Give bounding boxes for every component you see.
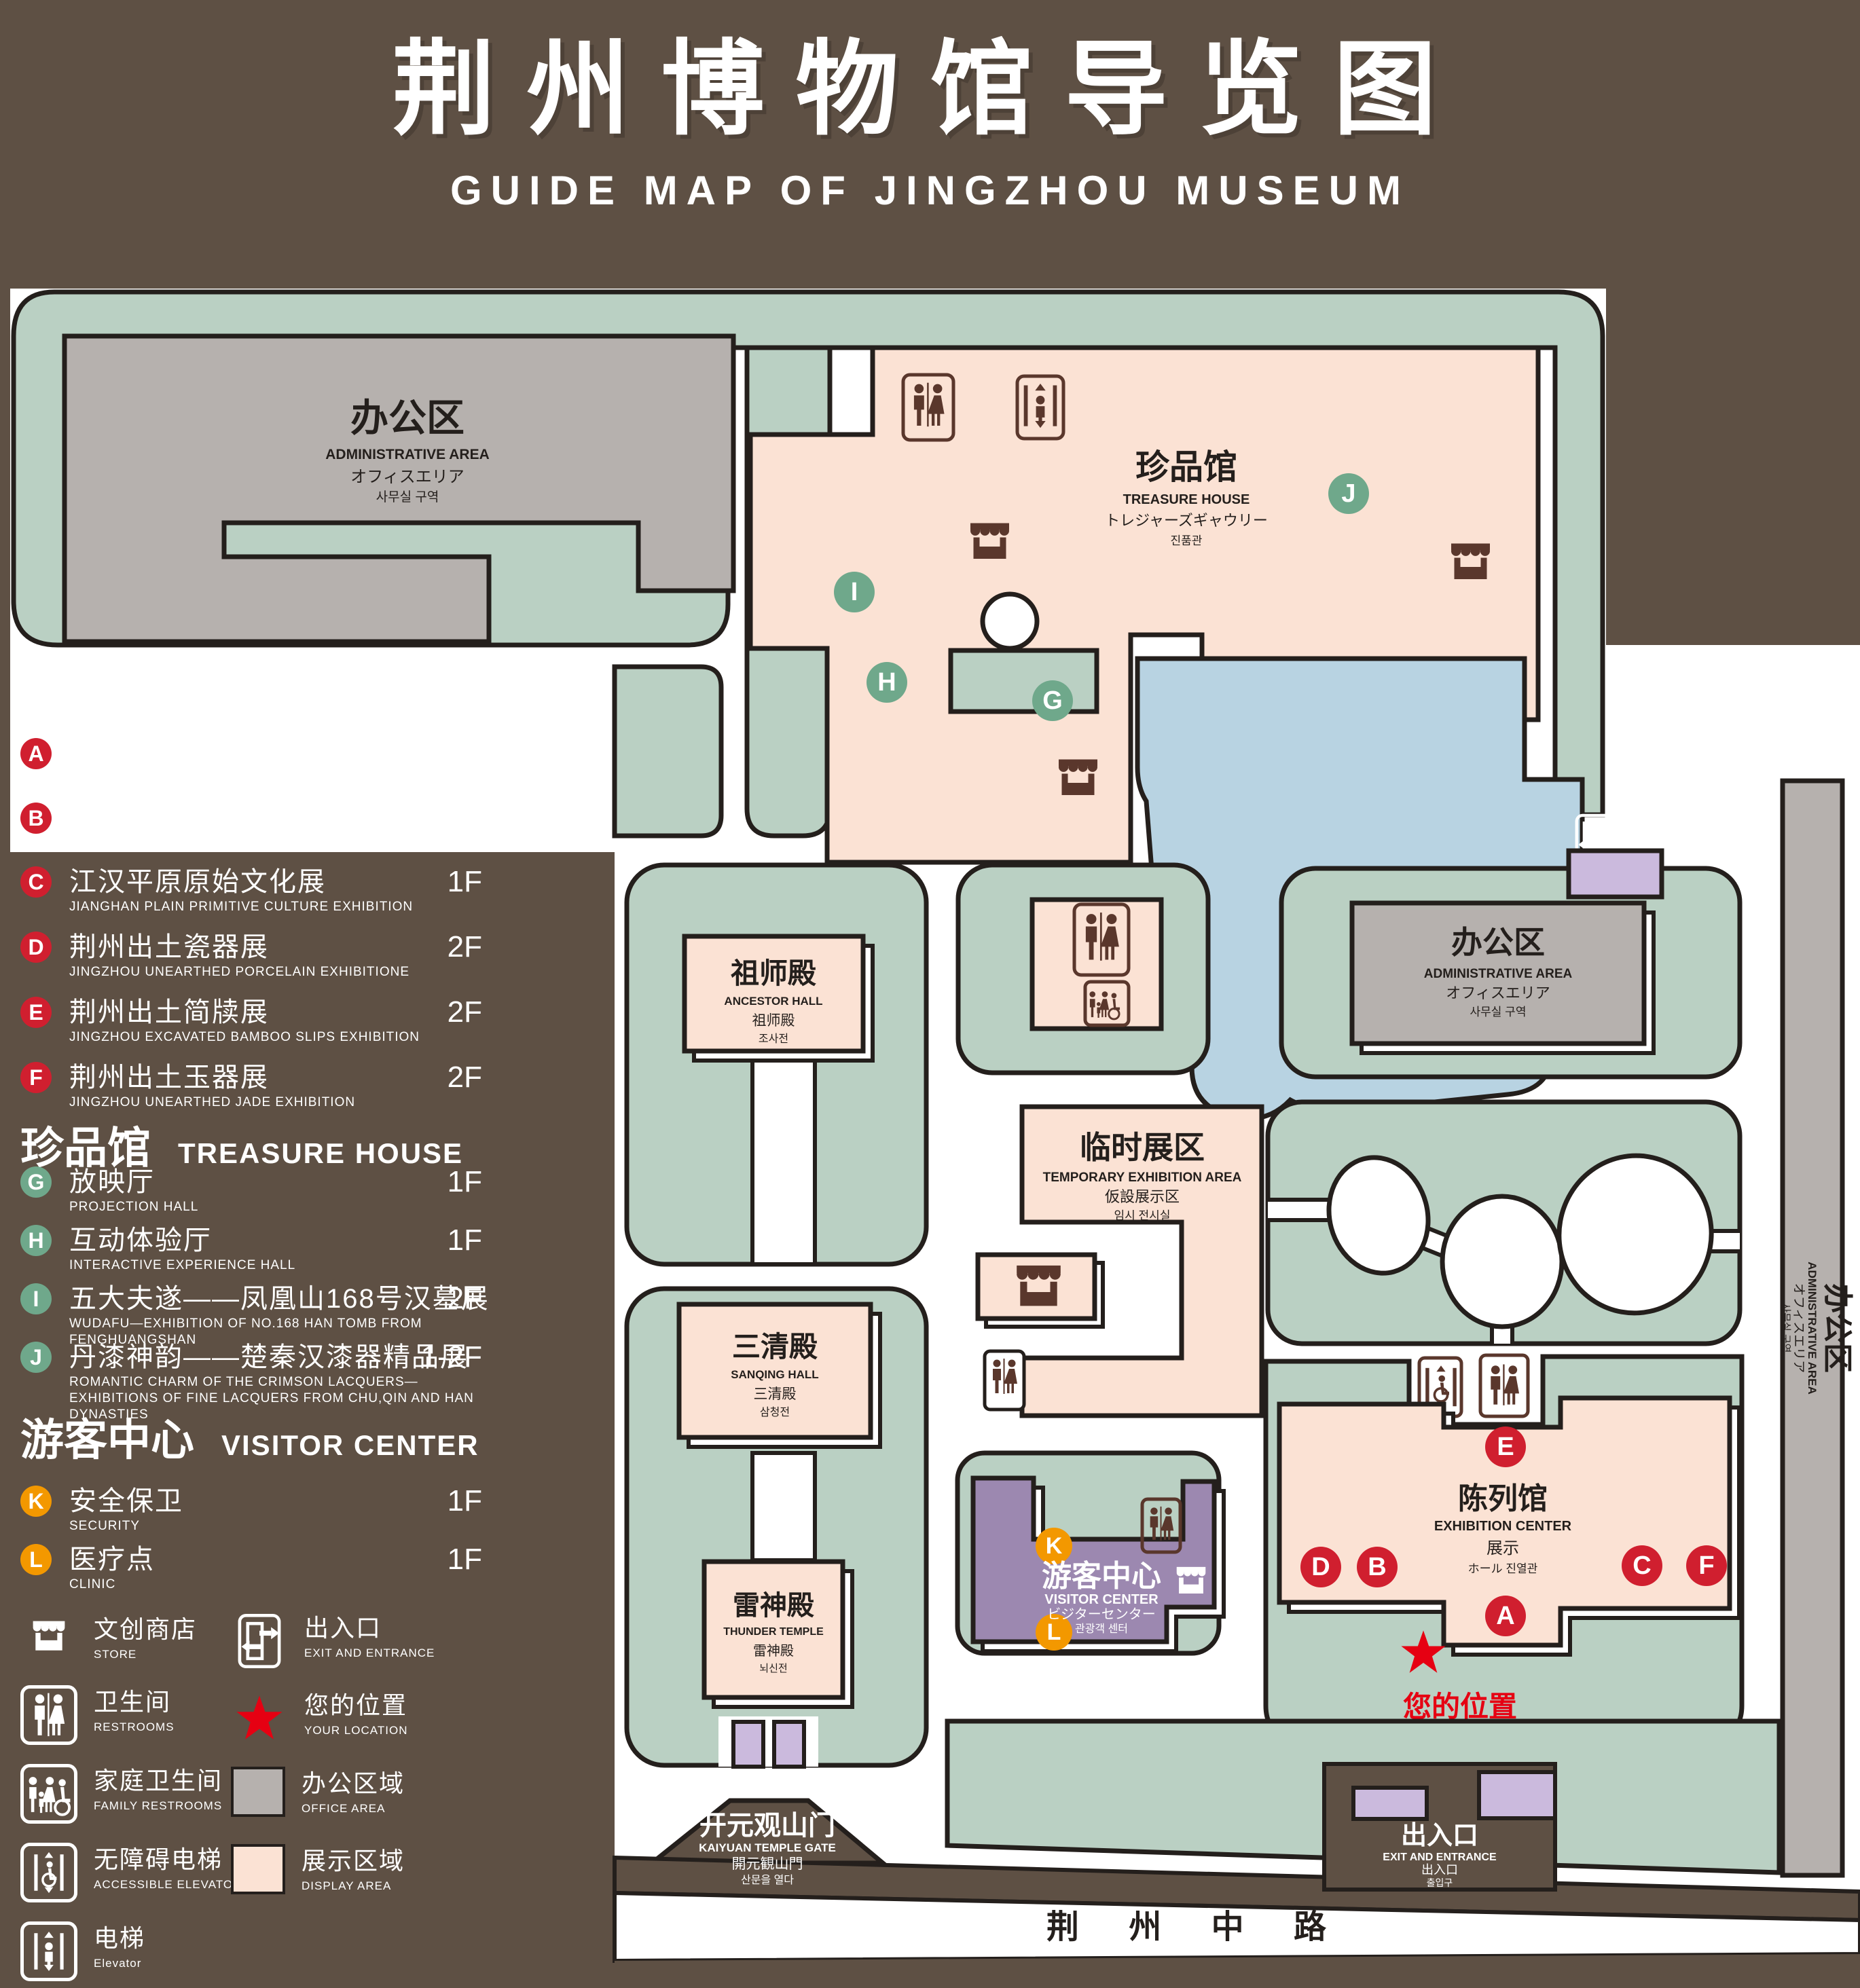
item-zh: 《火中的凤凰》壁画 bbox=[69, 737, 598, 771]
key-en: OFFICE AREA bbox=[302, 1801, 526, 1817]
family-restroom-icon bbox=[20, 1764, 77, 1824]
item-zh: 荆州出土简牍展 bbox=[69, 995, 598, 1029]
restroom-building bbox=[1032, 900, 1161, 1029]
ancestor-label-ko: 조사전 bbox=[759, 1033, 788, 1045]
admin-nw-label-ja: オフィスエリア bbox=[350, 468, 464, 486]
item-en: JINGZHOU EXCAVATED BAMBOO SLIPS EXHIBITI… bbox=[69, 1029, 477, 1046]
admin-nw-label-zh: 办公区 bbox=[350, 397, 464, 439]
svg-text:ADMINISTRATIVE AREA: ADMINISTRATIVE AREA bbox=[1806, 1262, 1819, 1395]
exit-south-label-ko: 출입구 bbox=[1427, 1877, 1453, 1888]
gate-label-zh: 开元观山门 bbox=[699, 1811, 835, 1841]
admin-mid-label-zh: 办公区 bbox=[1451, 925, 1545, 960]
badge-B: B bbox=[20, 803, 52, 834]
admin-nw-label-en: ADMINISTRATIVE AREA bbox=[325, 447, 490, 462]
marker-F-letter: F bbox=[1698, 1551, 1714, 1580]
thunder-label-ko: 뇌신전 bbox=[759, 1663, 787, 1674]
exit-south-label-en: EXIT AND ENTRANCE bbox=[1383, 1852, 1497, 1863]
exhibition-label-line4: ホール 진열관 bbox=[1468, 1562, 1538, 1575]
item-en: PROJECTION HALL bbox=[69, 1199, 477, 1215]
item-zh: 丹漆神韵——楚秦汉漆器精品展 bbox=[69, 1340, 598, 1374]
item-en: JINGZHOU UNEARTHED JADE EXHIBITION bbox=[69, 1094, 477, 1111]
elevator-icon bbox=[20, 1921, 77, 1981]
svg-text:사무실 구역: 사무실 구역 bbox=[1780, 1303, 1791, 1352]
exit-top-label-ja: 出入口 bbox=[1652, 830, 1692, 845]
exit-top-label-en: EXIT AND ENTRANCE bbox=[1611, 815, 1732, 828]
item-zh: 荆州出土玉器展 bbox=[69, 1061, 598, 1094]
item-floor: 2F bbox=[448, 995, 482, 1029]
item-en: INTERACTIVE EXPERIENCE HALL bbox=[69, 1257, 477, 1274]
exit-top-label-zh: 出入口 bbox=[1629, 782, 1715, 814]
treasure-label-zh: 珍品馆 bbox=[1135, 448, 1237, 486]
your-location-label: 您的位置 bbox=[1403, 1691, 1517, 1723]
legend-item-E: E 荆州出土简牍展 JINGZHOU EXCAVATED BAMBOO SLIP… bbox=[20, 995, 598, 1046]
marker-H-letter: H bbox=[877, 668, 896, 697]
green-block-west bbox=[615, 667, 721, 836]
visitor-label-en: VISITOR CENTER bbox=[1044, 1592, 1159, 1607]
accessible-elevator-icon bbox=[20, 1843, 77, 1902]
item-zh: 荆州出土瓷器展 bbox=[69, 930, 598, 964]
marker-I-letter: I bbox=[851, 578, 858, 606]
exit-south-label-zh: 出入口 bbox=[1401, 1822, 1478, 1850]
visitor-label-zh: 游客中心 bbox=[1042, 1560, 1161, 1593]
legend-item-I: I 五大夫遂——凤凰山168号汉墓展 WUDAFU—EXHIBITION OF … bbox=[20, 1282, 598, 1348]
item-floor: 1F bbox=[448, 1165, 482, 1199]
legend-item-D: D 荆州出土瓷器展 JINGZHOU UNEARTHED PORCELAIN E… bbox=[20, 930, 598, 980]
marker-K-letter: K bbox=[1046, 1533, 1063, 1559]
item-floor: 2F bbox=[448, 930, 482, 964]
gate-pillar bbox=[733, 1722, 763, 1767]
admin-mid-label-ja: オフィスエリア bbox=[1446, 984, 1550, 1001]
item-en: SECURITY bbox=[69, 1518, 477, 1534]
store-icon bbox=[20, 1613, 77, 1672]
sanqing-label-ko: 삼청전 bbox=[760, 1406, 790, 1418]
item-floor: 1F bbox=[448, 737, 482, 771]
key-exit: 出入口 EXIT AND ENTRANCE bbox=[231, 1611, 528, 1671]
treasure-label-ja: トレジャーズギャウリー bbox=[1105, 512, 1268, 529]
badge-J: J bbox=[20, 1342, 52, 1373]
legend-item-C: C 江汉平原原始文化展 JIANGHAN PLAIN PRIMITIVE CUL… bbox=[20, 865, 598, 915]
marker-B-letter: B bbox=[1368, 1553, 1386, 1581]
section-title-zh: 陈列馆 bbox=[20, 672, 151, 735]
marker-L-letter: L bbox=[1047, 1619, 1061, 1645]
thunder-label-ja: 雷神殿 bbox=[753, 1643, 794, 1659]
thunder-label-zh: 雷神殿 bbox=[733, 1591, 814, 1621]
gate-label-ko: 산문을 열다 bbox=[741, 1874, 794, 1886]
admin-nw-label-ko: 사무실 구역 bbox=[376, 490, 439, 504]
legend-item-B: B 荆州出土铜器展 JINGZHOU UNEARTHED BRONZE WARE… bbox=[20, 801, 598, 851]
key-office-area: 办公区域 OFFICE AREA bbox=[231, 1767, 526, 1817]
marker-G-letter: G bbox=[1042, 686, 1063, 715]
badge-G: G bbox=[20, 1166, 52, 1198]
section-title-en: VISITOR CENTER bbox=[221, 1429, 479, 1462]
key-zh: 展示区域 bbox=[302, 1844, 526, 1878]
gate-label-ja: 開元観山門 bbox=[732, 1856, 803, 1872]
store-block bbox=[978, 1255, 1095, 1319]
exhibition-label-en: EXHIBITION CENTER bbox=[1434, 1519, 1572, 1534]
section-title-en: EXHIBITION CENTER bbox=[178, 696, 490, 729]
legend-item-L: L 医疗点 CLINIC 1F bbox=[20, 1543, 598, 1593]
visitor-label-ja: ビジターセンター bbox=[1047, 1606, 1156, 1622]
legend-item-K: K 安全保卫 SECURITY 1F bbox=[20, 1484, 598, 1534]
svg-text:オフィスエリア: オフィスエリア bbox=[1791, 1283, 1806, 1374]
thunder-label-en: THUNDER TEMPLE bbox=[723, 1626, 824, 1638]
key-zh: 出入口 bbox=[304, 1611, 528, 1645]
badge-D: D bbox=[20, 932, 52, 963]
item-zh: 医疗点 bbox=[69, 1543, 598, 1577]
ancestor-label-en: ANCESTOR HALL bbox=[724, 995, 822, 1008]
map-legend: 陈列馆 EXHIBITION CENTER A 《火中的凤凰》壁画 THE PH… bbox=[20, 672, 618, 1983]
badge-I: I bbox=[20, 1283, 52, 1314]
gate-label-en: KAIYUAN TEMPLE GATE bbox=[699, 1841, 836, 1854]
item-zh: 五大夫遂——凤凰山168号汉墓展 bbox=[69, 1282, 598, 1316]
item-en: JINGZHOU UNEARTHED PORCELAIN EXHIBITIONE bbox=[69, 964, 477, 980]
marker-C-letter: C bbox=[1633, 1551, 1651, 1580]
item-floor: 1F bbox=[448, 865, 482, 899]
badge-F: F bbox=[20, 1062, 52, 1093]
exhibition-label-line3: 展示 bbox=[1487, 1539, 1519, 1558]
item-zh: 安全保卫 bbox=[69, 1484, 598, 1518]
legend-item-G: G 放映厅 PROJECTION HALL 1F bbox=[20, 1165, 598, 1215]
item-en: THE PHOENIX IN FIRE "MURAL PAINTING bbox=[69, 771, 477, 787]
treasure-green-terrace bbox=[951, 650, 1097, 712]
legend-section-exhibition: 陈列馆 EXHIBITION CENTER bbox=[20, 672, 490, 735]
sanqing-label-ja: 三清殿 bbox=[754, 1386, 797, 1402]
sanqing-label-zh: 三清殿 bbox=[732, 1331, 818, 1363]
legend-item-F: F 荆州出土玉器展 JINGZHOU UNEARTHED JADE EXHIBI… bbox=[20, 1061, 598, 1111]
item-floor: 2F bbox=[448, 1061, 482, 1094]
item-en: JIANGHAN PLAIN PRIMITIVE CULTURE EXHIBIT… bbox=[69, 899, 477, 915]
key-zh: 办公区域 bbox=[302, 1767, 526, 1801]
marker-E-letter: E bbox=[1497, 1433, 1514, 1461]
item-floor: 2F bbox=[448, 1282, 482, 1316]
item-zh: 荆州出土铜器展 bbox=[69, 801, 598, 835]
item-floor: 1F bbox=[448, 1223, 482, 1257]
section-title-zh: 游客中心 bbox=[20, 1405, 194, 1468]
key-en: EXIT AND ENTRANCE bbox=[304, 1645, 528, 1661]
key-zh: 电梯 bbox=[94, 1921, 318, 1955]
badge-L: L bbox=[20, 1544, 52, 1575]
svg-text:办公区: 办公区 bbox=[1821, 1283, 1854, 1373]
road-label: 荆 州 中 路 bbox=[1046, 1909, 1347, 1945]
ancestor-label-ja: 祖师殿 bbox=[752, 1013, 795, 1029]
display-area-swatch bbox=[231, 1844, 285, 1894]
key-your-location: 您的位置 YOUR LOCATION bbox=[231, 1689, 528, 1748]
badge-K: K bbox=[20, 1486, 52, 1517]
item-en: JINGZHOU UNEARTHED BRONZE WARE EXHIBITIO… bbox=[69, 835, 477, 851]
location-star-icon bbox=[231, 1689, 288, 1748]
key-elevator: 电梯 Elevator bbox=[20, 1921, 318, 1981]
item-floor: 1-2F bbox=[421, 1340, 482, 1374]
gate-pillar bbox=[774, 1722, 804, 1767]
treasure-label-ko: 진품관 bbox=[1171, 534, 1203, 547]
restroom-icon bbox=[1480, 1355, 1528, 1416]
guide-map-poster: 荆州博物馆导览图 GUIDE MAP OF JINGZHOU MUSEUM bbox=[0, 0, 1860, 1988]
key-zh: 您的位置 bbox=[304, 1689, 528, 1723]
exit-pavilion bbox=[1569, 851, 1662, 897]
exit-icon bbox=[231, 1611, 288, 1671]
ancestor-label-zh: 祖师殿 bbox=[731, 957, 816, 989]
key-en: DISPLAY AREA bbox=[302, 1878, 526, 1894]
item-zh: 互动体验厅 bbox=[69, 1223, 598, 1257]
admin-mid-label-en: ADMINISTRATIVE AREA bbox=[1424, 967, 1573, 981]
badge-H: H bbox=[20, 1225, 52, 1256]
item-zh: 放映厅 bbox=[69, 1165, 598, 1199]
restroom-icon bbox=[20, 1685, 77, 1745]
item-floor: 1F bbox=[448, 1484, 482, 1518]
temporary-label-ja: 仮設展示区 bbox=[1105, 1188, 1180, 1205]
badge-E: E bbox=[20, 997, 52, 1028]
courtyard-path bbox=[752, 1453, 815, 1560]
garden-pond bbox=[1442, 1196, 1562, 1327]
item-zh: 江汉平原原始文化展 bbox=[69, 865, 598, 899]
marker-D-letter: D bbox=[1311, 1553, 1330, 1581]
key-en: YOUR LOCATION bbox=[304, 1723, 528, 1739]
admin-mid-label-ko: 사무실 구역 bbox=[1470, 1006, 1527, 1018]
marker-J-letter: J bbox=[1341, 479, 1355, 508]
sanqing-label-en: SANQING HALL bbox=[731, 1368, 818, 1381]
treasure-courtyard-circle bbox=[983, 594, 1037, 648]
courtyard-path bbox=[752, 1059, 815, 1264]
restroom-icon bbox=[985, 1351, 1024, 1410]
exhibition-label-zh: 陈列馆 bbox=[1458, 1482, 1548, 1515]
temporary-label-zh: 临时展区 bbox=[1080, 1130, 1205, 1165]
item-en: CLINIC bbox=[69, 1577, 477, 1593]
visitor-label-ko: 관광객 센터 bbox=[1075, 1623, 1128, 1635]
marker-A-letter: A bbox=[1496, 1602, 1514, 1630]
exit-pavilion bbox=[1479, 1772, 1555, 1818]
badge-A: A bbox=[20, 738, 52, 769]
legend-item-A: A 《火中的凤凰》壁画 THE PHOENIX IN FIRE "MURAL P… bbox=[20, 737, 598, 787]
exit-south-label-ja: 出入口 bbox=[1421, 1863, 1458, 1877]
exit-pavilion bbox=[1353, 1788, 1427, 1819]
office-area-swatch bbox=[231, 1767, 285, 1817]
key-display-area: 展示区域 DISPLAY AREA bbox=[231, 1844, 526, 1894]
temporary-label-en: TEMPORARY EXHIBITION AREA bbox=[1043, 1171, 1242, 1185]
item-floor: 1F bbox=[448, 801, 482, 835]
item-floor: 1F bbox=[448, 1543, 482, 1577]
temporary-label-ko: 임시 전시실 bbox=[1114, 1209, 1171, 1222]
badge-C: C bbox=[20, 866, 52, 898]
treasure-label-en: TREASURE HOUSE bbox=[1123, 492, 1250, 507]
legend-item-H: H 互动体验厅 INTERACTIVE EXPERIENCE HALL 1F bbox=[20, 1223, 598, 1274]
key-en: Elevator bbox=[94, 1955, 318, 1972]
legend-section-visitor: 游客中心 VISITOR CENTER bbox=[20, 1405, 479, 1468]
